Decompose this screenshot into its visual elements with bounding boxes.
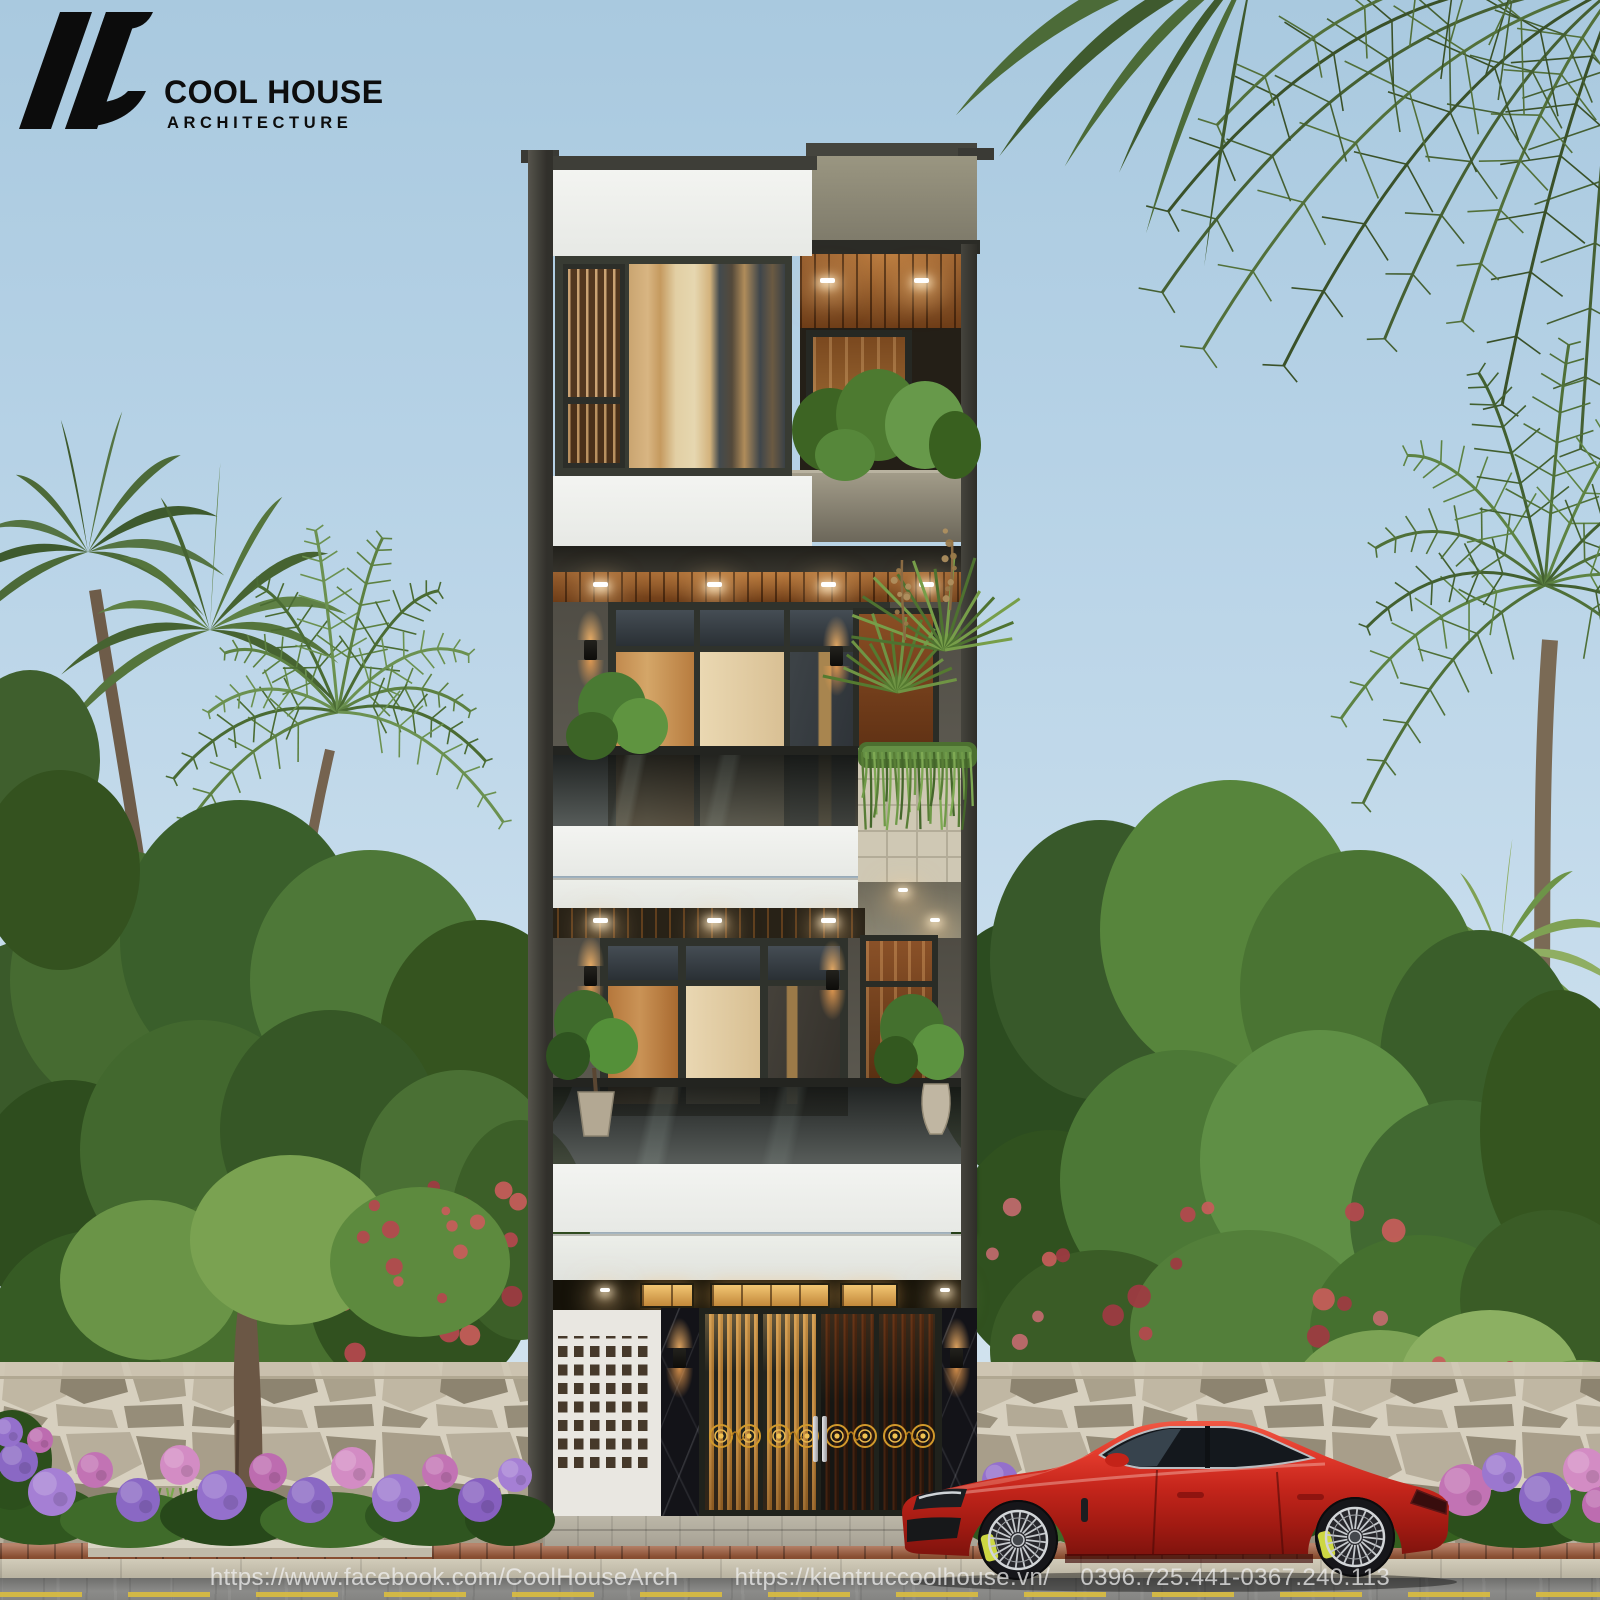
door-handle xyxy=(1177,1492,1204,1498)
rooftop-planter-plants xyxy=(792,369,981,481)
hanging-vines xyxy=(858,742,977,830)
brand-logo: COOL HOUSE ARCHITECTURE xyxy=(18,8,418,138)
architecture-render-scene: https://www.facebook.com/CoolHouseArch h… xyxy=(0,0,1600,1600)
watermark-facebook-url: https://www.facebook.com/CoolHouseArch xyxy=(210,1564,679,1592)
fender-vent xyxy=(1081,1498,1088,1522)
brand-name: COOL HOUSE xyxy=(164,74,384,111)
potted-plant-left xyxy=(546,990,638,1136)
foreground-vegetation xyxy=(0,0,1600,1600)
watermark-phone-numbers: 0396.725.441-0367.240.113 xyxy=(1080,1564,1390,1592)
potted-plant-right xyxy=(874,994,964,1134)
balcony-yucca-plants xyxy=(823,528,1020,692)
door-handle xyxy=(1297,1494,1324,1500)
brand-logo-icon xyxy=(18,8,153,133)
balcony-shrub xyxy=(566,672,668,760)
brand-tagline: ARCHITECTURE xyxy=(167,114,352,133)
watermark-bar: https://www.facebook.com/CoolHouseArch h… xyxy=(0,1560,1600,1596)
side-mirror xyxy=(1105,1453,1129,1467)
b-pillar xyxy=(1205,1426,1210,1468)
watermark-website-url: https://kientruccoolhouse.vn/ xyxy=(735,1564,1051,1592)
